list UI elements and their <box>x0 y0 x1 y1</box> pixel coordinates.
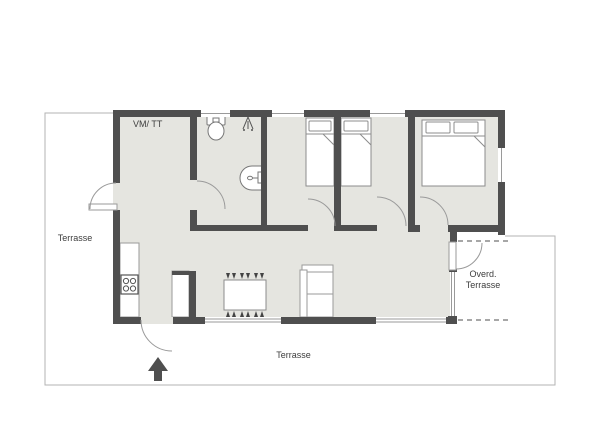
wall-bedroom-divider-2 <box>408 110 415 231</box>
wall-top <box>113 110 505 117</box>
covered-terrace-label-line1: Overd. <box>454 269 512 280</box>
wall-bedroom-divider-1 <box>334 110 341 231</box>
wall-bath-right <box>261 110 267 231</box>
wall-rooms-bottom-a <box>190 225 308 231</box>
single-bed-icon <box>341 118 371 186</box>
wall-corner-post-bottom <box>448 316 457 324</box>
door-leaf-side <box>89 204 117 210</box>
wall-utility-right-upper <box>190 110 197 180</box>
entrance-arrow-icon <box>148 357 168 381</box>
terrace-bottom-label: Terrasse <box>266 350 321 361</box>
tall-cabinet <box>172 271 196 317</box>
double-bed-icon <box>422 120 485 186</box>
stove-icon <box>121 275 138 294</box>
floor-plan: VM/ TT Terrasse Terrasse Overd. Terrasse <box>0 0 600 424</box>
wall-left <box>113 110 120 324</box>
single-bed-icon <box>306 118 334 186</box>
door-terrace <box>456 243 482 269</box>
sofa-icon <box>300 265 333 317</box>
toilet-icon <box>207 116 225 140</box>
terrace-left-label: Terrasse <box>50 233 100 244</box>
covered-terrace-label-line2: Terrasse <box>454 280 512 291</box>
utility-room-label: VM/ TT <box>133 119 162 130</box>
dining-table <box>224 280 266 310</box>
covered-terrace-label: Overd. Terrasse <box>454 269 512 291</box>
wall-corner-post-top <box>450 232 457 242</box>
washbasin-icon <box>240 166 264 190</box>
door-leaf-terrace <box>449 242 456 270</box>
door-entrance <box>141 320 172 351</box>
